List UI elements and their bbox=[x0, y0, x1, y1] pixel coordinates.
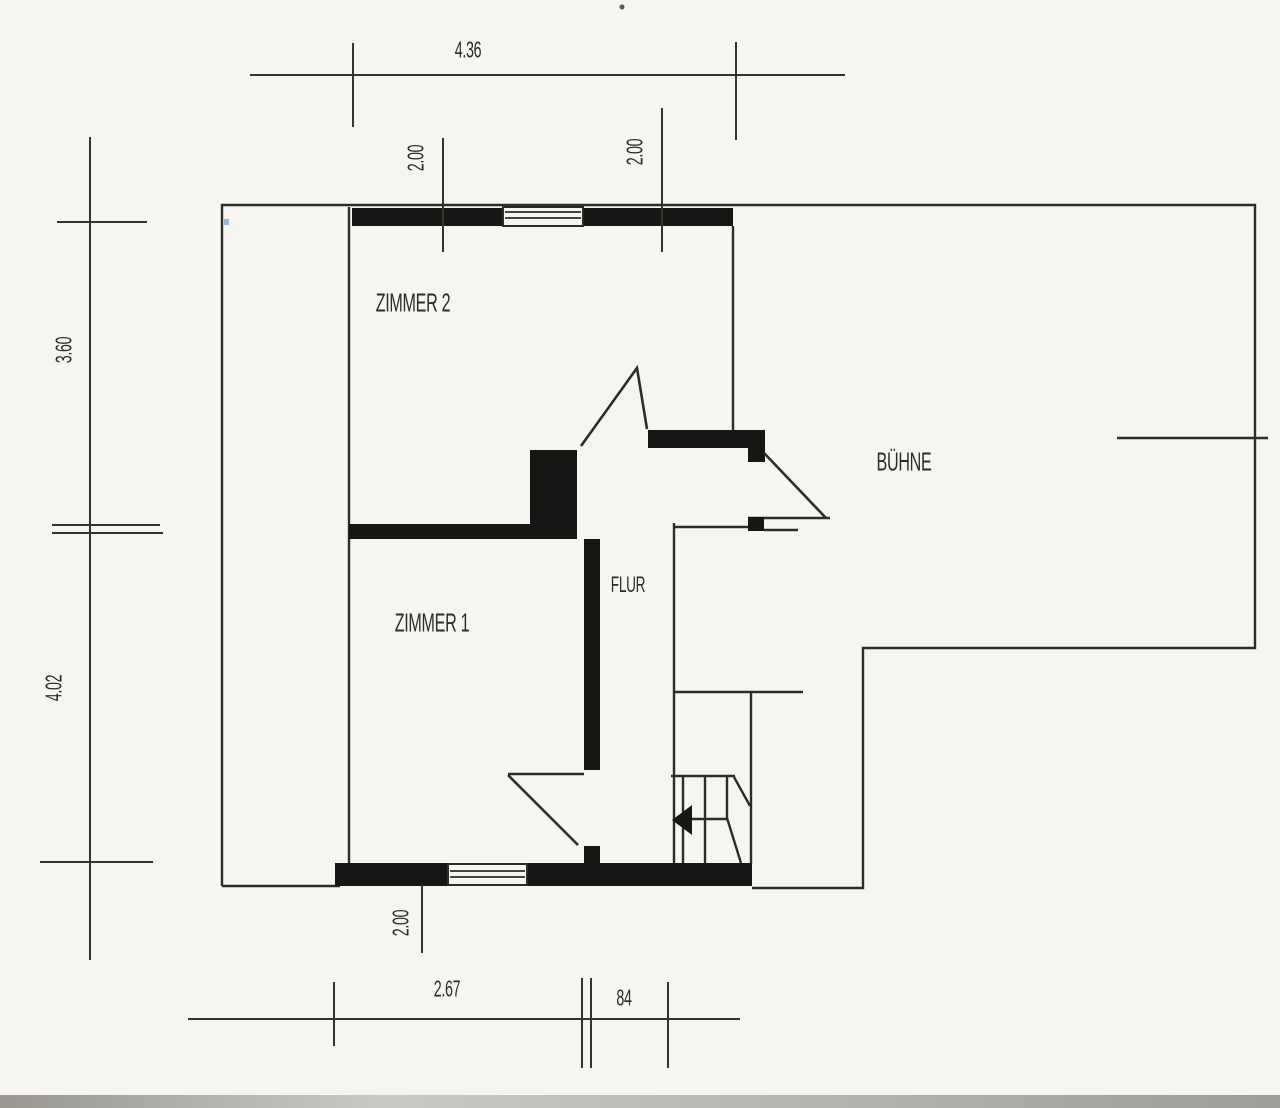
window-top-frame bbox=[503, 207, 583, 226]
room-label-zimmer-2: ZIMMER 2 bbox=[376, 288, 451, 319]
door-buehne-swing bbox=[764, 453, 826, 518]
window-top bbox=[503, 207, 583, 226]
wall-zimmer1-door-strike bbox=[584, 846, 600, 864]
floor-plan: ZIMMER 2 ZIMMER 1 FLUR BÜHNE 4.36 2.00 2… bbox=[0, 0, 1280, 1108]
dim-label-bottom-left: 2.67 bbox=[434, 976, 461, 1003]
room-label-flur: FLUR bbox=[611, 572, 645, 598]
door-zimmer1-swing bbox=[508, 775, 578, 845]
wall-zimmer-divider bbox=[349, 524, 530, 539]
dim-label-left-upper: 3.60 bbox=[51, 337, 78, 364]
dim-label-bottom-window: 2.00 bbox=[388, 910, 415, 937]
dim-label-left-lower: 4.02 bbox=[41, 675, 68, 702]
room-label-zimmer-1: ZIMMER 1 bbox=[395, 608, 470, 639]
wall-top-right bbox=[583, 208, 733, 226]
blue-corner-mark bbox=[224, 219, 229, 225]
wall-bottom-right bbox=[527, 863, 752, 886]
room-label-buehne: BÜHNE bbox=[877, 447, 932, 478]
window-bottom-frame bbox=[448, 864, 527, 885]
dim-label-top-width: 4.36 bbox=[455, 37, 482, 64]
chimney-block bbox=[530, 450, 577, 539]
wall-zimmer1-east bbox=[584, 539, 600, 770]
window-bottom bbox=[448, 864, 527, 885]
scan-artifacts bbox=[224, 5, 625, 226]
stair-winder-line-1 bbox=[734, 777, 750, 806]
wall-buehne-door-jamb bbox=[748, 446, 765, 462]
staircase bbox=[671, 776, 750, 863]
stair-winder-line-2 bbox=[727, 818, 741, 863]
speck-top bbox=[620, 5, 625, 10]
wall-bottom-left bbox=[335, 863, 448, 886]
dim-label-window-left: 2.00 bbox=[403, 145, 430, 172]
dimension-lines bbox=[40, 42, 845, 1068]
dim-label-window-right: 2.00 bbox=[622, 139, 649, 166]
scan-edge-artifact bbox=[0, 1095, 1280, 1108]
wall-top-left bbox=[352, 208, 503, 226]
dim-label-bottom-right: 84 bbox=[616, 985, 631, 1012]
wall-flur-north bbox=[648, 430, 765, 448]
door-zimmer2-swing bbox=[581, 368, 647, 446]
plan-linework bbox=[0, 0, 1280, 1108]
wall-buehne-door-strike bbox=[748, 517, 764, 531]
